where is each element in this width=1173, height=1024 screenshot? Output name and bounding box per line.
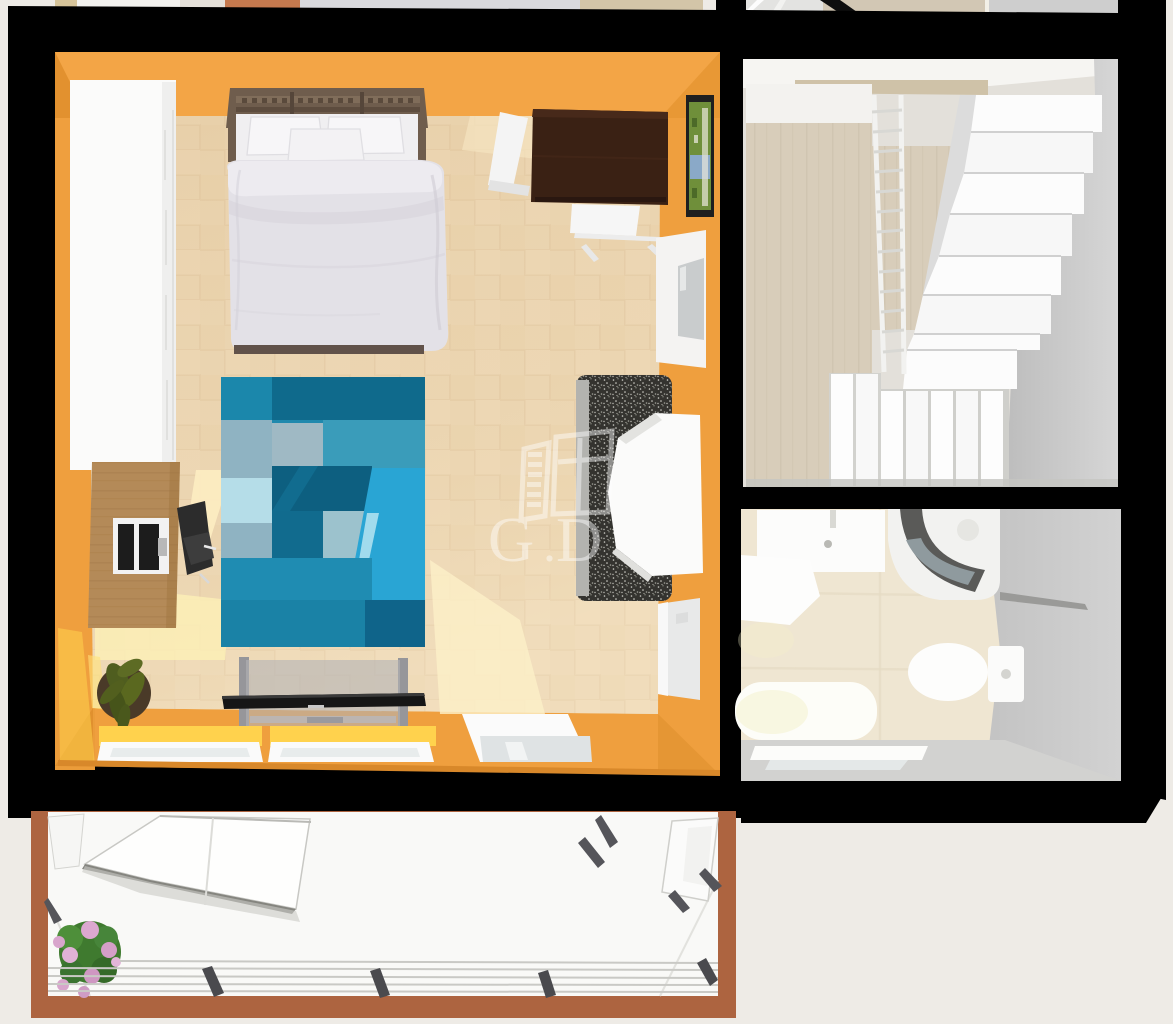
svg-text:D: D (556, 504, 602, 575)
svg-text:.: . (543, 516, 556, 573)
svg-text:G: G (488, 504, 534, 575)
